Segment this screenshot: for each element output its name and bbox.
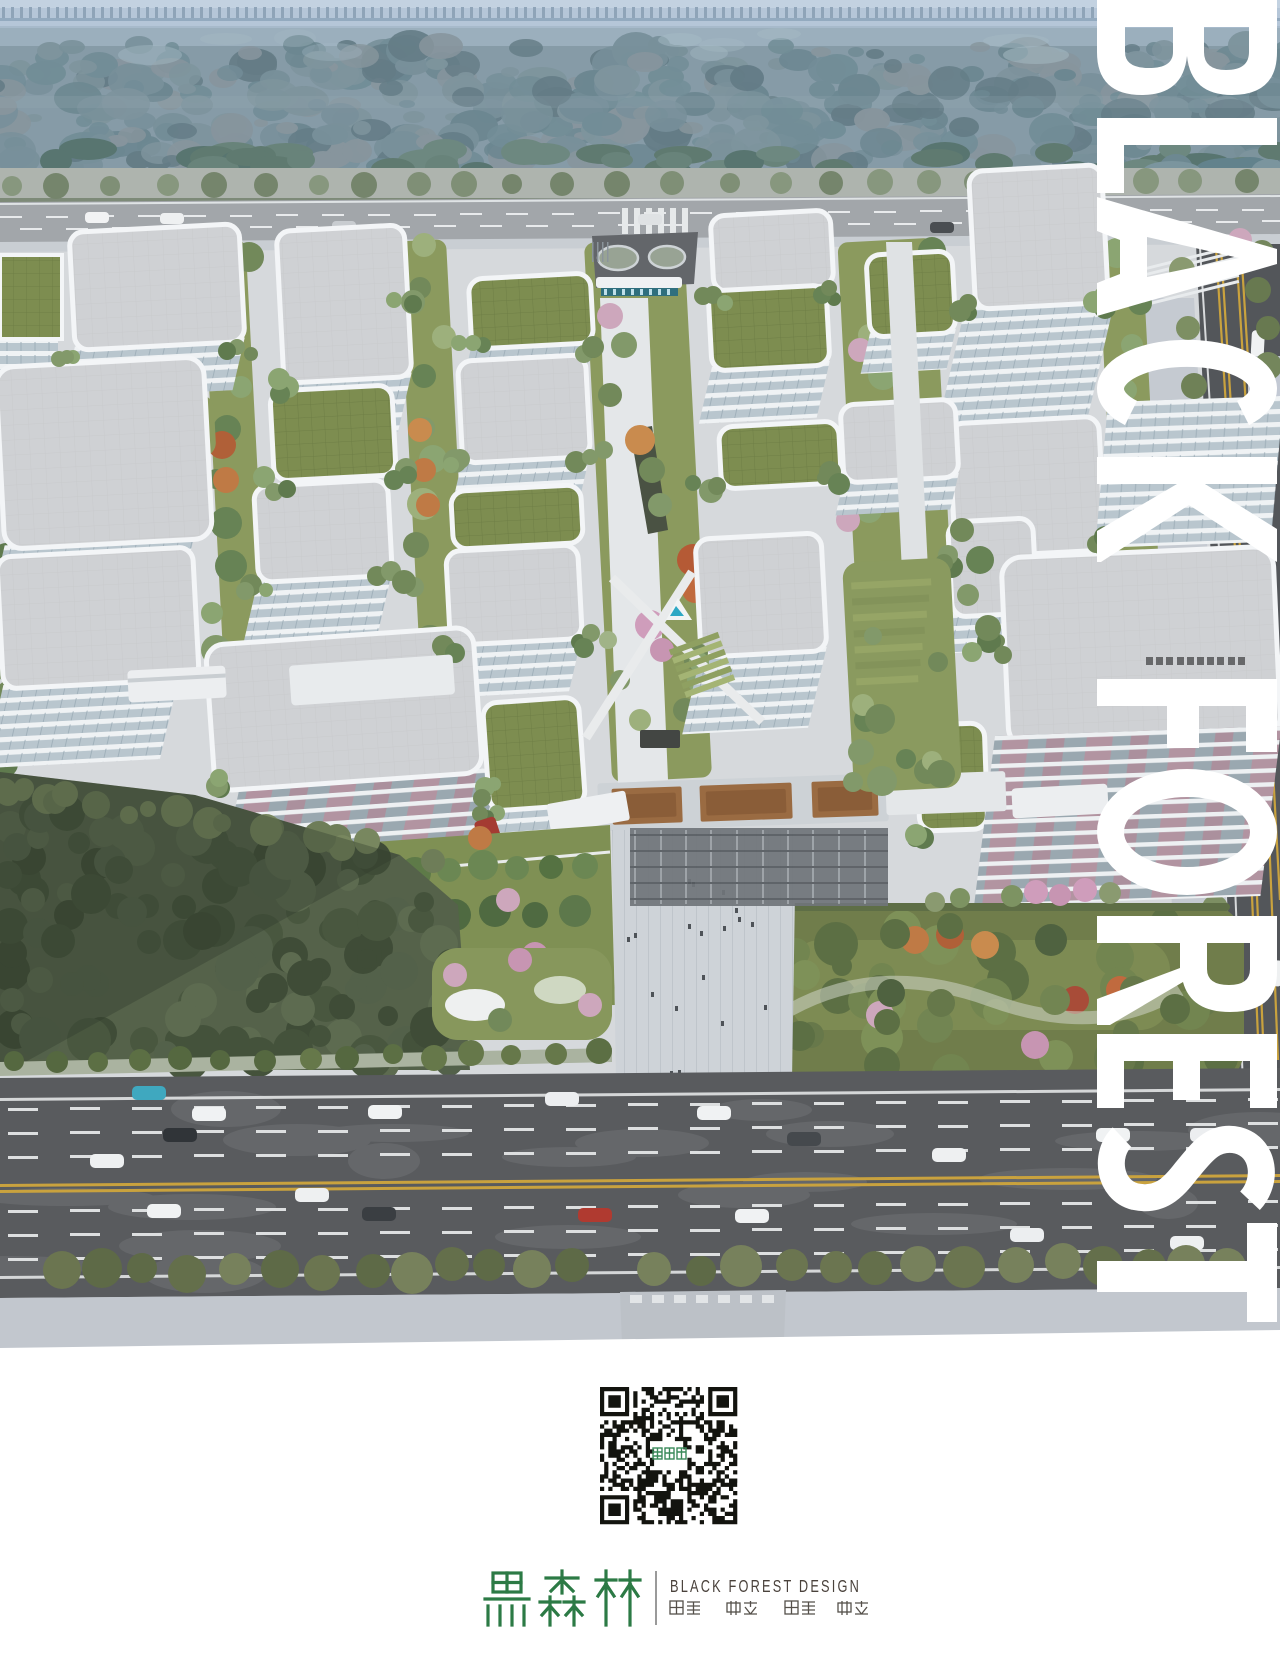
svg-text:BLACK FOREST DESIGN: BLACK FOREST DESIGN	[670, 1576, 861, 1596]
